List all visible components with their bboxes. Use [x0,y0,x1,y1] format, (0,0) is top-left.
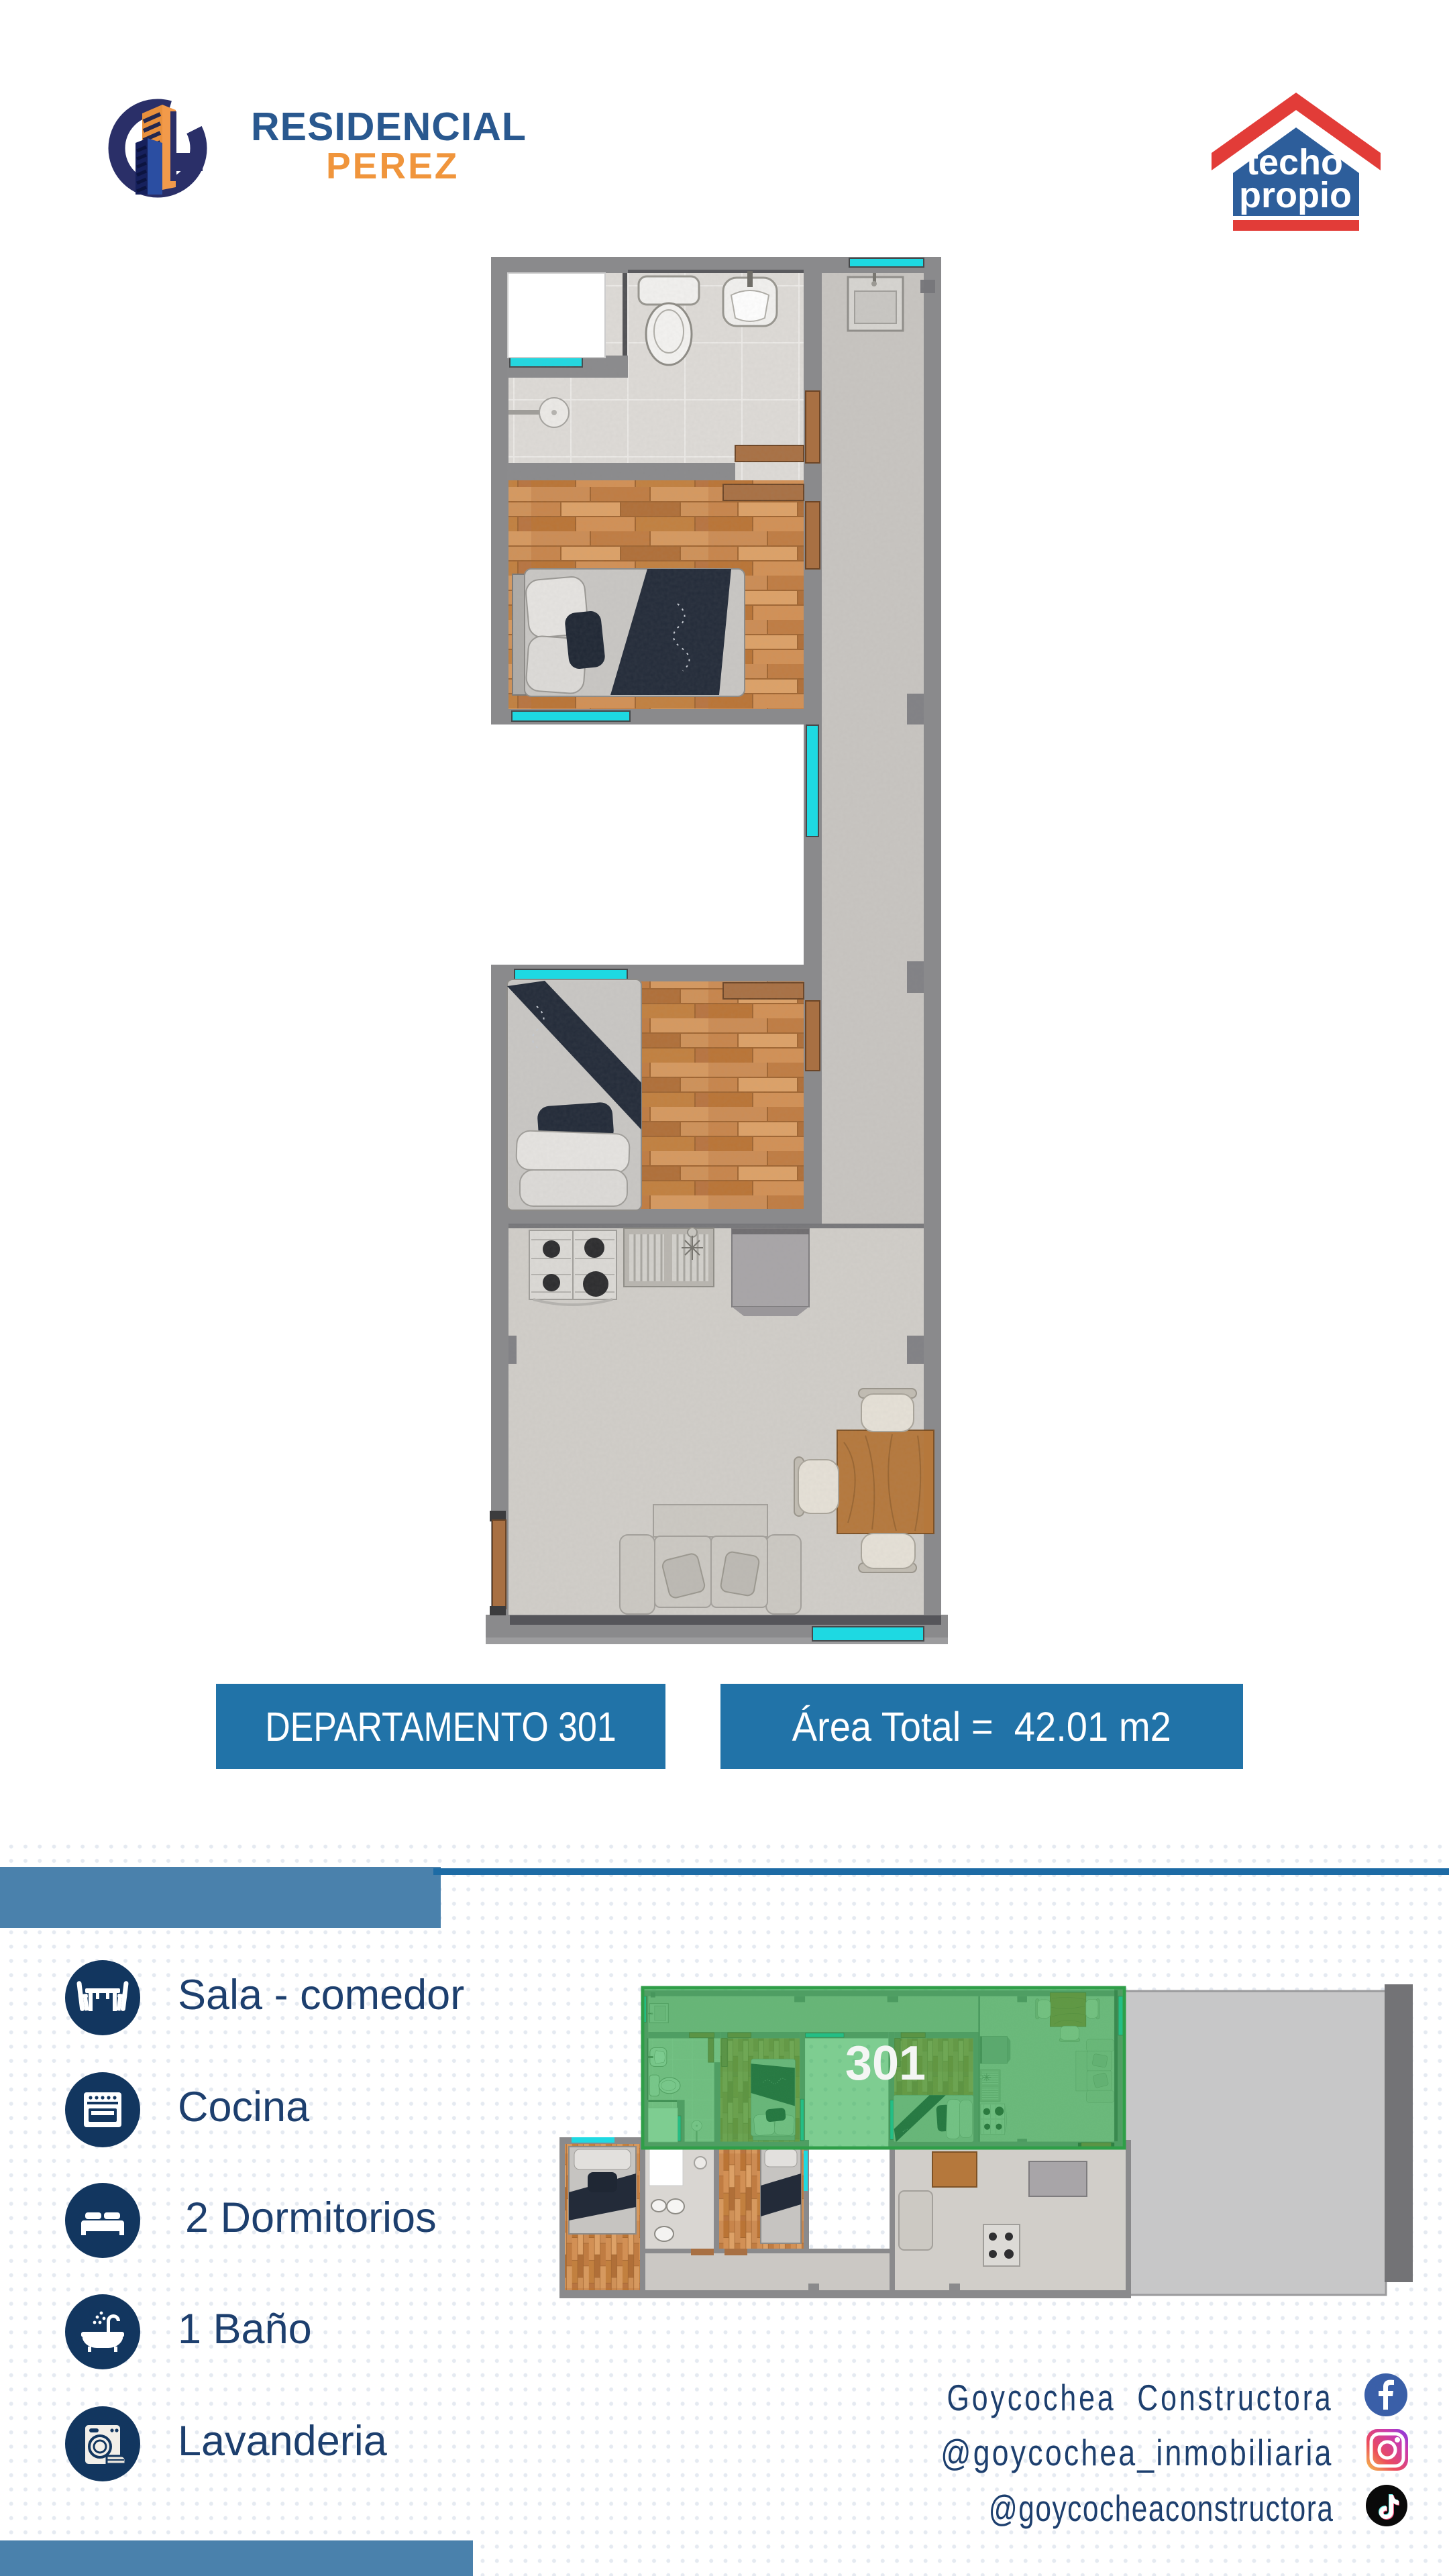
svg-text:propio: propio [1239,175,1352,215]
svg-text:301: 301 [845,2037,926,2090]
